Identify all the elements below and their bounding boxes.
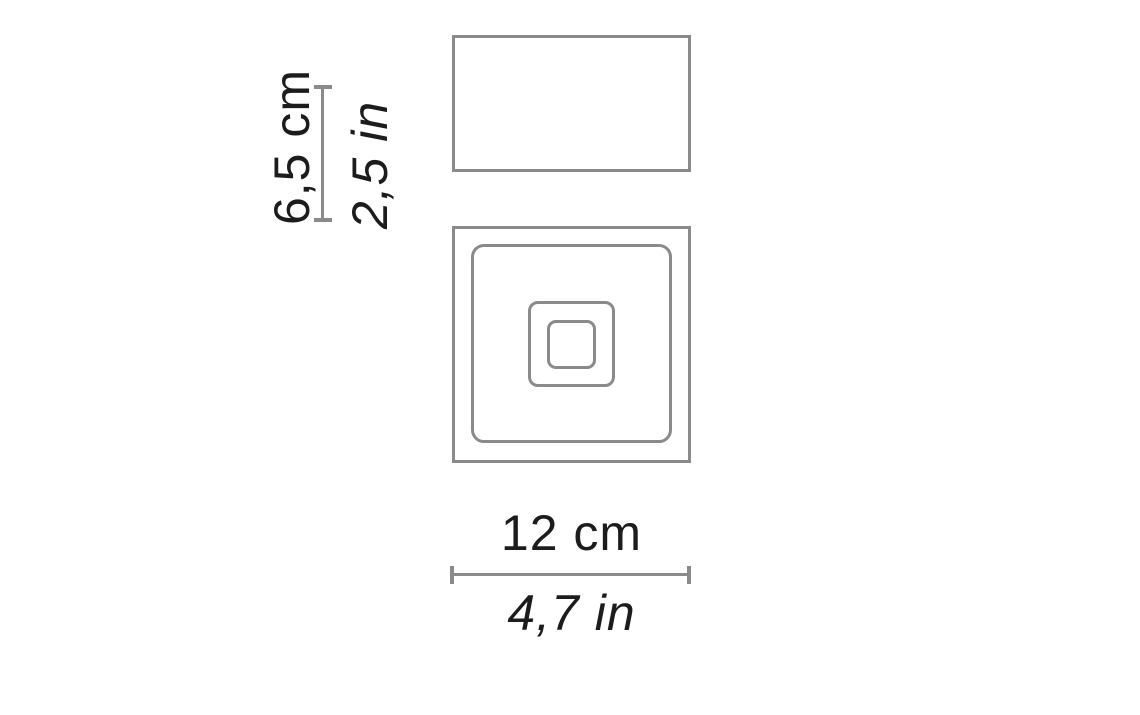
top-view-inner-square-small	[547, 320, 596, 369]
height-dimension-line	[321, 87, 324, 221]
width-dimension-line	[452, 573, 690, 576]
height-label-metric: 6,5 cm	[267, 67, 317, 227]
dimension-drawing-canvas: 6,5 cm 2,5 in 12 cm 4,7 in	[0, 0, 1140, 715]
width-dimension-cap-right	[687, 566, 691, 584]
side-view-rectangle	[452, 35, 691, 172]
height-label-imperial: 2,5 in	[345, 85, 395, 245]
width-label-imperial: 4,7 in	[452, 588, 691, 638]
width-dimension-cap-left	[450, 566, 454, 584]
width-label-metric: 12 cm	[452, 508, 691, 558]
